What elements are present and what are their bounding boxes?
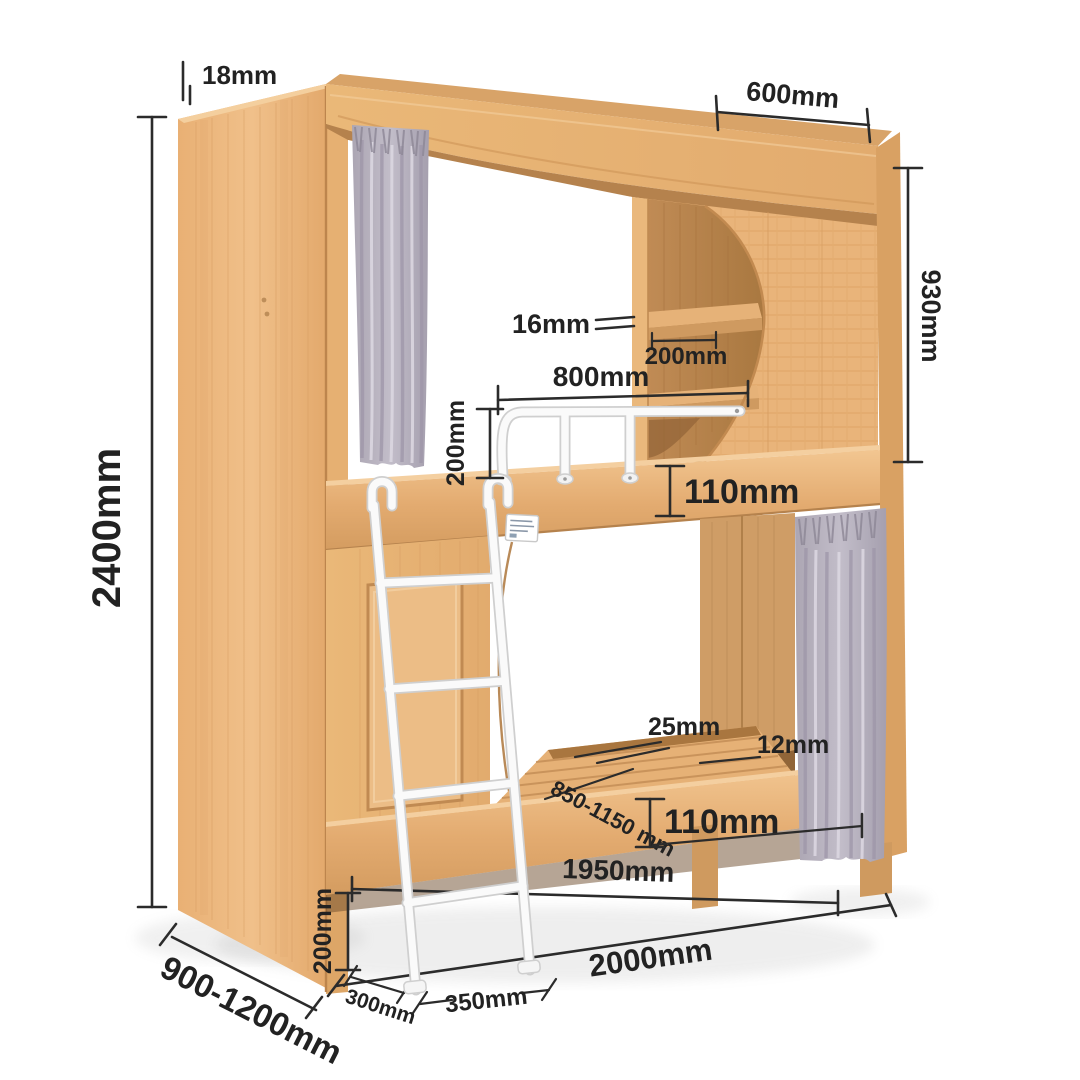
dim-top-width-label: 600mm [745, 76, 840, 114]
dim-shelf-thickness-label: 16mm [512, 309, 590, 339]
dim-right-section-height-label: 930mm [916, 269, 946, 362]
bunk-bed-dimension-diagram: 1950mm 2000mm 350mm 300mm 200mm 900-1200… [0, 0, 1080, 1080]
right-cabinet [632, 197, 878, 462]
dim-total-height: 2400mm [85, 117, 166, 907]
dim-back-edge-thickness-label: 12mm [757, 731, 829, 759]
dim-under-clearance-label: 200mm [309, 888, 337, 974]
left-side-panel [178, 84, 332, 988]
dim-ladder-feet-spacing: 350mm [413, 979, 556, 1018]
lower-curtain [795, 508, 887, 862]
dim-board-thickness: 18mm [183, 60, 277, 104]
dim-board-thickness-label: 18mm [202, 60, 277, 90]
dim-slat-thickness-label: 25mm [648, 713, 720, 741]
product-sticker [505, 514, 538, 542]
dim-guardrail-length-label: 800mm [553, 361, 650, 392]
dim-inner-length-label: 1950mm [562, 853, 675, 888]
dim-upper-frame-height-label: 110mm [684, 473, 799, 511]
upper-curtain [352, 125, 429, 468]
dim-total-height-label: 2400mm [85, 448, 129, 608]
diagram-canvas: 1950mm 2000mm 350mm 300mm 200mm 900-1200… [0, 0, 1080, 1080]
dim-guardrail-height-label: 200mm [442, 400, 470, 486]
ladder-foot [517, 960, 540, 974]
dim-ladder-feet-label: 350mm [444, 983, 529, 1019]
ladder-foot [403, 980, 426, 994]
dim-shelf-depth-label: 200mm [645, 343, 728, 370]
screw-dot [265, 312, 270, 317]
screw-dot [262, 298, 267, 303]
dim-lower-frame-height-label: 110mm [664, 803, 779, 841]
